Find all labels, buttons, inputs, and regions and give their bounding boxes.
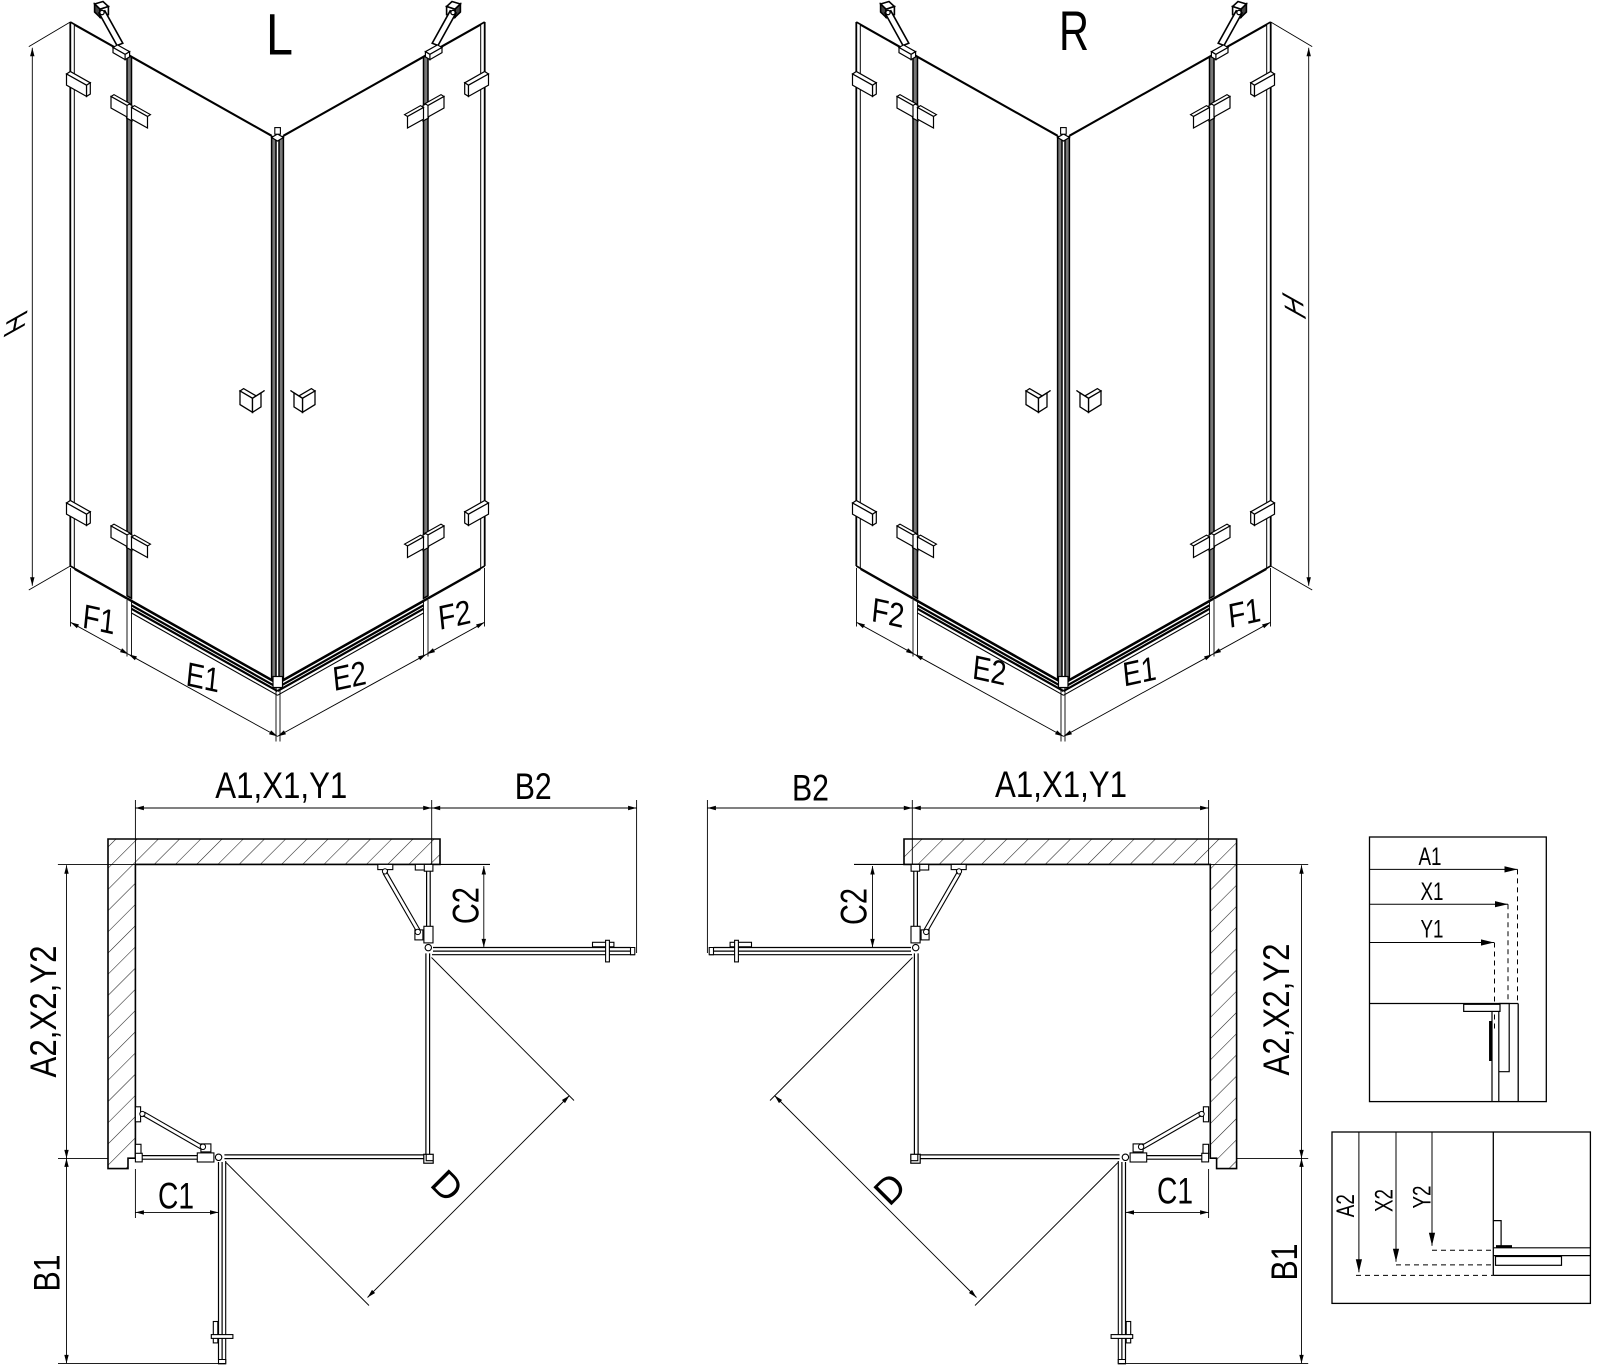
svg-text:E2: E2	[331, 654, 368, 699]
svg-text:C2: C2	[834, 888, 875, 925]
svg-text:F1: F1	[81, 598, 117, 643]
svg-text:B2: B2	[792, 768, 829, 809]
svg-text:L: L	[266, 3, 293, 68]
svg-text:A2,X2,Y2: A2,X2,Y2	[1256, 944, 1297, 1076]
svg-text:A2: A2	[1332, 1194, 1360, 1217]
svg-text:A1,X1,Y1: A1,X1,Y1	[215, 765, 347, 806]
svg-text:C2: C2	[446, 887, 487, 924]
svg-text:F2: F2	[870, 591, 906, 636]
svg-text:E2: E2	[971, 648, 1008, 693]
svg-text:B2: B2	[515, 766, 552, 807]
svg-text:F1: F1	[1226, 591, 1262, 636]
svg-text:C1: C1	[1157, 1171, 1193, 1212]
svg-text:E1: E1	[1121, 649, 1158, 694]
svg-text:C1: C1	[158, 1176, 194, 1217]
svg-text:A1,X1,Y1: A1,X1,Y1	[995, 764, 1127, 805]
svg-text:B1: B1	[1264, 1244, 1305, 1281]
svg-text:B1: B1	[27, 1255, 68, 1292]
svg-text:F2: F2	[436, 593, 472, 638]
svg-text:A2,X2,Y2: A2,X2,Y2	[23, 946, 64, 1078]
svg-text:X1: X1	[1421, 878, 1444, 906]
svg-text:X2: X2	[1371, 1189, 1399, 1212]
svg-text:A1: A1	[1419, 843, 1442, 871]
svg-text:E1: E1	[185, 655, 222, 700]
svg-text:Y2: Y2	[1409, 1186, 1437, 1209]
svg-text:Y1: Y1	[1421, 916, 1444, 944]
svg-text:R: R	[1059, 0, 1089, 62]
